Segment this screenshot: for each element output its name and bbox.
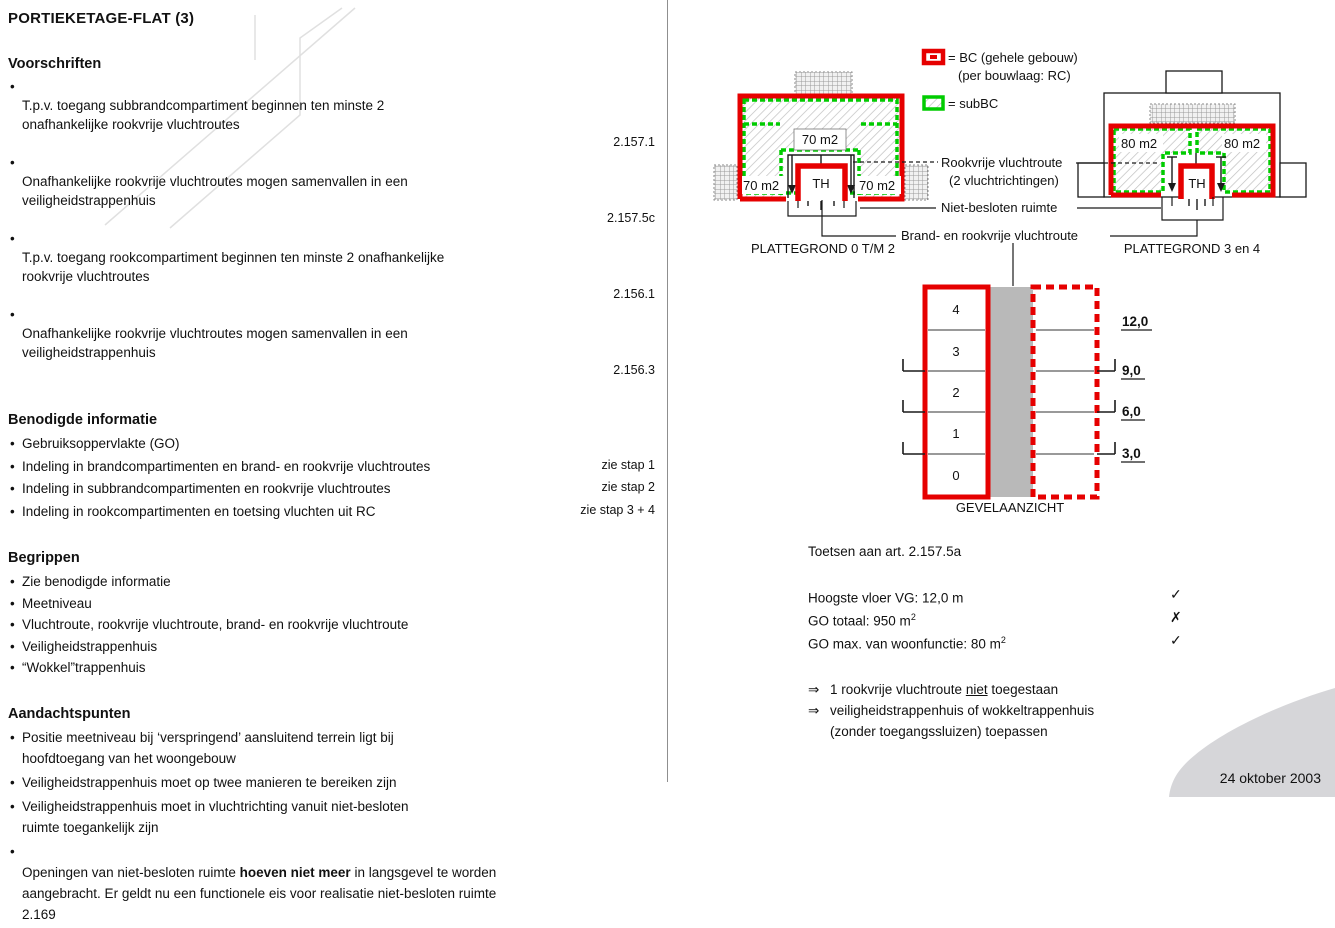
- item-text: T.p.v. toegang subbrandcompartiment begi…: [22, 98, 384, 132]
- callout-open-space: Niet-besloten ruimte: [941, 200, 1057, 215]
- legend-subbc-label: = subBC: [948, 96, 998, 111]
- conclusion-post: toegestaan: [988, 682, 1059, 697]
- assessment-rows: Hoogste vloer VG: 12,0 m ✓ GO totaal: 95…: [808, 585, 1228, 653]
- list-item: “Wokkel”trappenhuis: [8, 657, 660, 679]
- legend: = BC (gehele gebouw) (per bouwlaag: RC) …: [924, 50, 1078, 111]
- list-item: Indeling in subbrandcompartimenten en ro…: [8, 478, 660, 501]
- item-text-bold: hoeven niet meer: [240, 865, 351, 880]
- assessment-row: GO max. van woonfunctie: 80 m2 ✓: [808, 631, 1228, 654]
- elevation-floor-4: 4: [952, 302, 959, 317]
- elevation-height-9: 9,0: [1122, 363, 1141, 378]
- section-heading-voorschriften: Voorschriften: [8, 56, 660, 72]
- list-item: Onafhankelijke rookvrije vluchtroutes mo…: [8, 305, 660, 381]
- floor-plan-2: 80 m2 80 m2 TH PLATTEGROND 3 en 4: [1078, 71, 1306, 256]
- elevation-height-3: 3,0: [1122, 446, 1141, 461]
- floor-plan-1: 70 m2 70 m2 70 m2 TH PLATTEGROND 0 T/M 2: [714, 72, 928, 256]
- assessment-row: GO totaal: 950 m2 ✗: [808, 608, 1228, 631]
- item-text: Veiligheidstrappenhuis moet in vluchtric…: [22, 799, 408, 835]
- plan2-area-right: 80 m2: [1224, 136, 1260, 151]
- article-ref: 2.156.3: [613, 361, 655, 380]
- double-arrow-icon: ⇒: [808, 700, 830, 721]
- assessment-conclusions: ⇒ 1 rookvrije vluchtroute niet toegestaa…: [808, 679, 1228, 742]
- item-text: Meetniveau: [22, 596, 92, 611]
- list-item: Meetniveau: [8, 593, 660, 615]
- item-text: Veiligheidstrappenhuis: [22, 639, 157, 654]
- voorschriften-list: T.p.v. toegang subbrandcompartiment begi…: [8, 77, 660, 381]
- cross-mark-icon: ✗: [1170, 608, 1182, 627]
- conclusion-text: 1 rookvrije vluchtroute niet toegestaan: [830, 679, 1058, 700]
- row-label: GO max. van woonfunctie: 80 m: [808, 636, 1001, 651]
- item-text: Vluchtroute, rookvrije vluchtroute, bran…: [22, 617, 408, 632]
- list-item: Positie meetniveau bij ‘verspringend’ aa…: [8, 727, 660, 769]
- date-stamp: 24 oktober 2003: [1220, 770, 1321, 786]
- double-arrow-icon: ⇒: [808, 679, 830, 700]
- elevation-height-6: 6,0: [1122, 404, 1141, 419]
- elevation-floor-0: 0: [952, 468, 959, 483]
- conclusion-text-line2: (zonder toegangssluizen) toepassen: [830, 721, 1228, 742]
- step-ref: zie stap 3 + 4: [580, 499, 655, 522]
- callout-fire-smokefree-route: Brand- en rookvrije vluchtroute: [901, 228, 1078, 243]
- article-ref: 2.157.5c: [607, 209, 655, 228]
- elevation-height-12: 12,0: [1122, 314, 1148, 329]
- plan1-area-top: 70 m2: [802, 132, 838, 147]
- plan2-area-left: 80 m2: [1121, 136, 1157, 151]
- plan2-caption: PLATTEGROND 3 en 4: [1124, 241, 1260, 256]
- page: { "page": { "title": "PORTIEKETAGE-FLAT …: [0, 0, 1335, 797]
- check-mark-icon: ✓: [1170, 585, 1182, 604]
- item-text: Positie meetniveau bij ‘verspringend’ aa…: [22, 730, 394, 766]
- assessment-intro: Toetsen aan art. 2.157.5a: [808, 542, 1228, 561]
- elevation-caption: GEVELAANZICHT: [956, 500, 1064, 515]
- item-text: Veiligheidstrappenhuis moet op twee mani…: [22, 775, 396, 790]
- benodigde-informatie-list: Gebruiksoppervlakte (GO) Indeling in bra…: [8, 433, 660, 523]
- elevation-drawing: 4 3 2 1 0 12,0 9,0 6,0 3,0 GEVELAANZICHT: [903, 287, 1152, 515]
- step-ref: zie stap 2: [601, 476, 655, 499]
- plan1-stair-label: TH: [812, 176, 829, 191]
- elevation-floor-2: 2: [952, 385, 959, 400]
- item-text: Indeling in brandcompartimenten en brand…: [22, 459, 430, 474]
- list-item: Veiligheidstrappenhuis moet op twee mani…: [8, 772, 660, 793]
- section-heading-benodigde-informatie: Benodigde informatie: [8, 412, 660, 428]
- callout-smokefree-route-2: (2 vluchtrichtingen): [949, 173, 1059, 188]
- plan1-caption: PLATTEGROND 0 T/M 2: [751, 241, 895, 256]
- step-ref: zie stap 1: [601, 454, 655, 477]
- list-item: Indeling in brandcompartimenten en brand…: [8, 456, 660, 479]
- row-sup: 2: [911, 612, 916, 622]
- list-item: Openingen van niet-besloten ruimte hoeve…: [8, 841, 660, 925]
- list-item: T.p.v. toegang rookcompartiment beginnen…: [8, 229, 660, 305]
- column-divider: [667, 0, 668, 782]
- list-item: T.p.v. toegang subbrandcompartiment begi…: [8, 77, 660, 153]
- list-item: Vluchtroute, rookvrije vluchtroute, bran…: [8, 614, 660, 636]
- subbc-legend-icon: [924, 97, 943, 109]
- plan1-area-right: 70 m2: [859, 178, 895, 193]
- section-heading-aandachtspunten: Aandachtspunten: [8, 706, 660, 722]
- begrippen-list: Zie benodigde informatie Meetniveau Vluc…: [8, 571, 660, 679]
- item-text: Gebruiksoppervlakte (GO): [22, 436, 180, 451]
- row-sup: 2: [1001, 635, 1006, 645]
- plan2-stair-label: TH: [1188, 176, 1205, 191]
- item-text: Indeling in rookcompartimenten en toetsi…: [22, 504, 375, 519]
- item-text: Onafhankelijke rookvrije vluchtroutes mo…: [22, 174, 408, 208]
- list-item: Zie benodigde informatie: [8, 571, 660, 593]
- item-text: Onafhankelijke rookvrije vluchtroutes mo…: [22, 326, 408, 360]
- conclusion-text: veiligheidstrappenhuis of wokkeltrappenh…: [830, 700, 1094, 721]
- legend-bc-label2: (per bouwlaag: RC): [958, 68, 1071, 83]
- item-text: T.p.v. toegang rookcompartiment beginnen…: [22, 250, 444, 284]
- conclusion-row: ⇒ 1 rookvrije vluchtroute niet toegestaa…: [808, 679, 1228, 700]
- section-heading-begrippen: Begrippen: [8, 550, 660, 566]
- row-label: Hoogste vloer VG: 12,0 m: [808, 591, 963, 606]
- item-text: “Wokkel”trappenhuis: [22, 660, 146, 675]
- assessment-row: Hoogste vloer VG: 12,0 m ✓: [808, 585, 1228, 608]
- assessment-block: Toetsen aan art. 2.157.5a Hoogste vloer …: [808, 542, 1228, 742]
- item-text: Openingen van niet-besloten ruimte: [22, 865, 240, 880]
- row-label: GO totaal: 950 m: [808, 613, 911, 628]
- item-text: Zie benodigde informatie: [22, 574, 171, 589]
- list-item: Veiligheidstrappenhuis: [8, 636, 660, 658]
- conclusion-row: ⇒ veiligheidstrappenhuis of wokkeltrappe…: [808, 700, 1228, 721]
- aandachtspunten-list: Positie meetniveau bij ‘verspringend’ aa…: [8, 727, 660, 925]
- list-item: Indeling in rookcompartimenten en toetsi…: [8, 501, 660, 524]
- list-item: Gebruiksoppervlakte (GO): [8, 433, 660, 456]
- page-title: PORTIEKETAGE-FLAT (3): [8, 10, 660, 27]
- conclusion-pre: 1 rookvrije vluchtroute: [830, 682, 966, 697]
- item-text: Indeling in subbrandcompartimenten en ro…: [22, 481, 390, 496]
- conclusion-underline: niet: [966, 682, 988, 697]
- elevation-floor-3: 3: [952, 344, 959, 359]
- plan1-area-left: 70 m2: [743, 178, 779, 193]
- article-ref: 2.157.1: [613, 133, 655, 152]
- elevation-floor-1: 1: [952, 426, 959, 441]
- callout-smokefree-route: Rookvrije vluchtroute: [941, 155, 1062, 170]
- text-column: PORTIEKETAGE-FLAT (3) Voorschriften T.p.…: [8, 10, 660, 928]
- check-mark-icon: ✓: [1170, 631, 1182, 650]
- list-item: Veiligheidstrappenhuis moet in vluchtric…: [8, 796, 660, 838]
- legend-bc-label: = BC (gehele gebouw): [948, 50, 1078, 65]
- list-item: Onafhankelijke rookvrije vluchtroutes mo…: [8, 153, 660, 229]
- article-ref: 2.156.1: [613, 285, 655, 304]
